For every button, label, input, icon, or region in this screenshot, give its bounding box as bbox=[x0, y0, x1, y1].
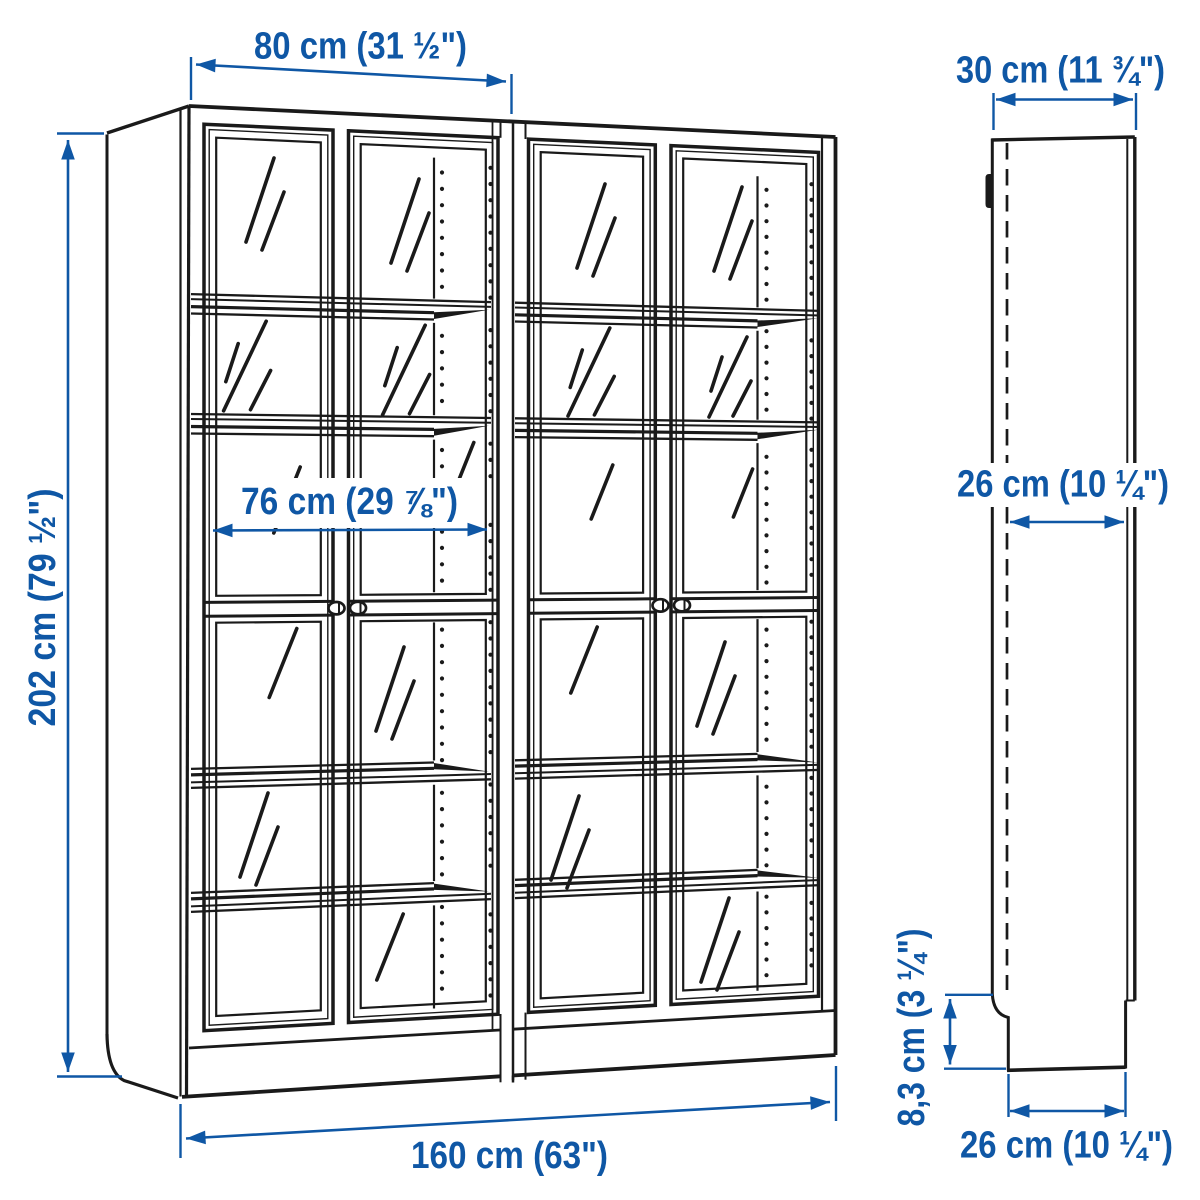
svg-text:202 cm (79 ½"): 202 cm (79 ½") bbox=[22, 489, 64, 727]
svg-text:80 cm (31 ½"): 80 cm (31 ½") bbox=[254, 25, 467, 67]
svg-text:76 cm (29 ⅞"): 76 cm (29 ⅞") bbox=[241, 481, 458, 523]
svg-text:30 cm (11 ¾"): 30 cm (11 ¾") bbox=[956, 49, 1165, 91]
svg-text:8,3 cm (3 ¼"): 8,3 cm (3 ¼") bbox=[891, 929, 933, 1127]
svg-text:26 cm (10 ¼"): 26 cm (10 ¼") bbox=[957, 463, 1169, 505]
svg-text:160 cm (63"): 160 cm (63") bbox=[411, 1135, 608, 1177]
svg-text:26 cm (10 ¼"): 26 cm (10 ¼") bbox=[960, 1124, 1173, 1166]
